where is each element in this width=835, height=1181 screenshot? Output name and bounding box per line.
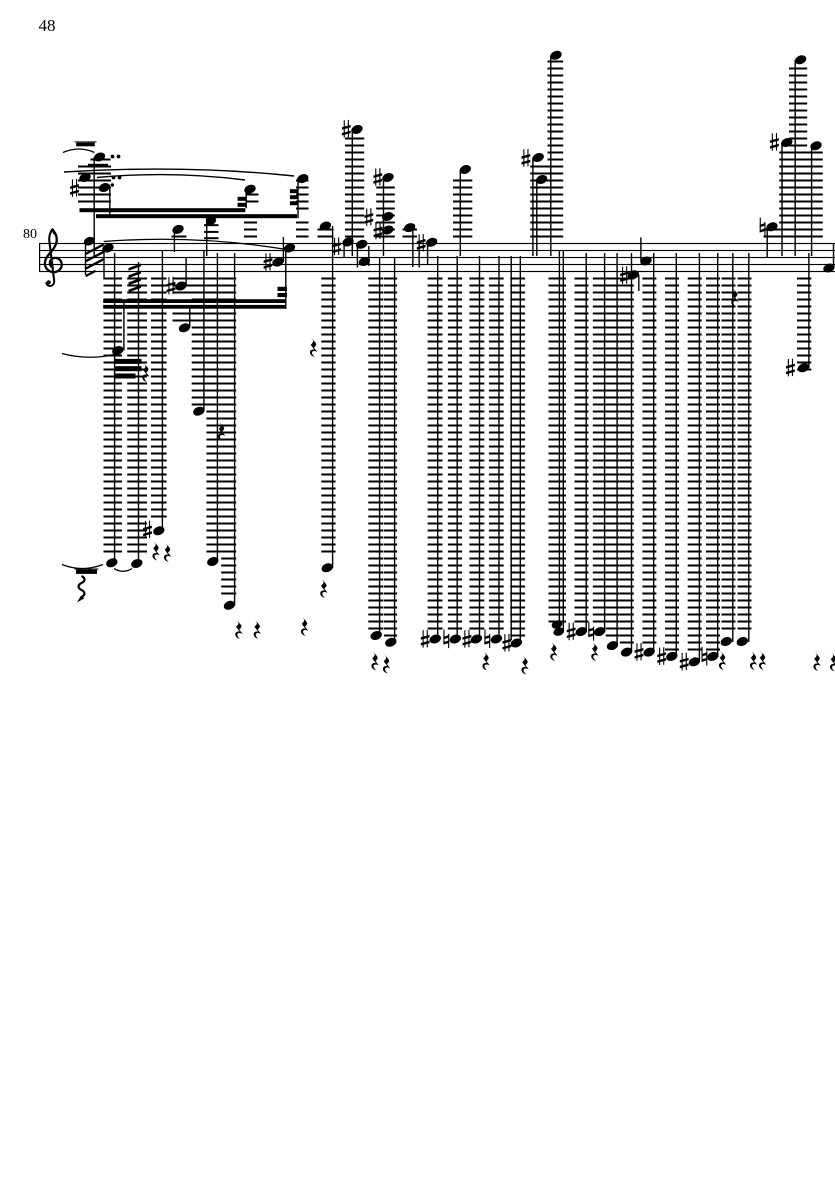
svg-text:48: 48 [39,16,56,35]
svg-text:80: 80 [23,227,37,242]
